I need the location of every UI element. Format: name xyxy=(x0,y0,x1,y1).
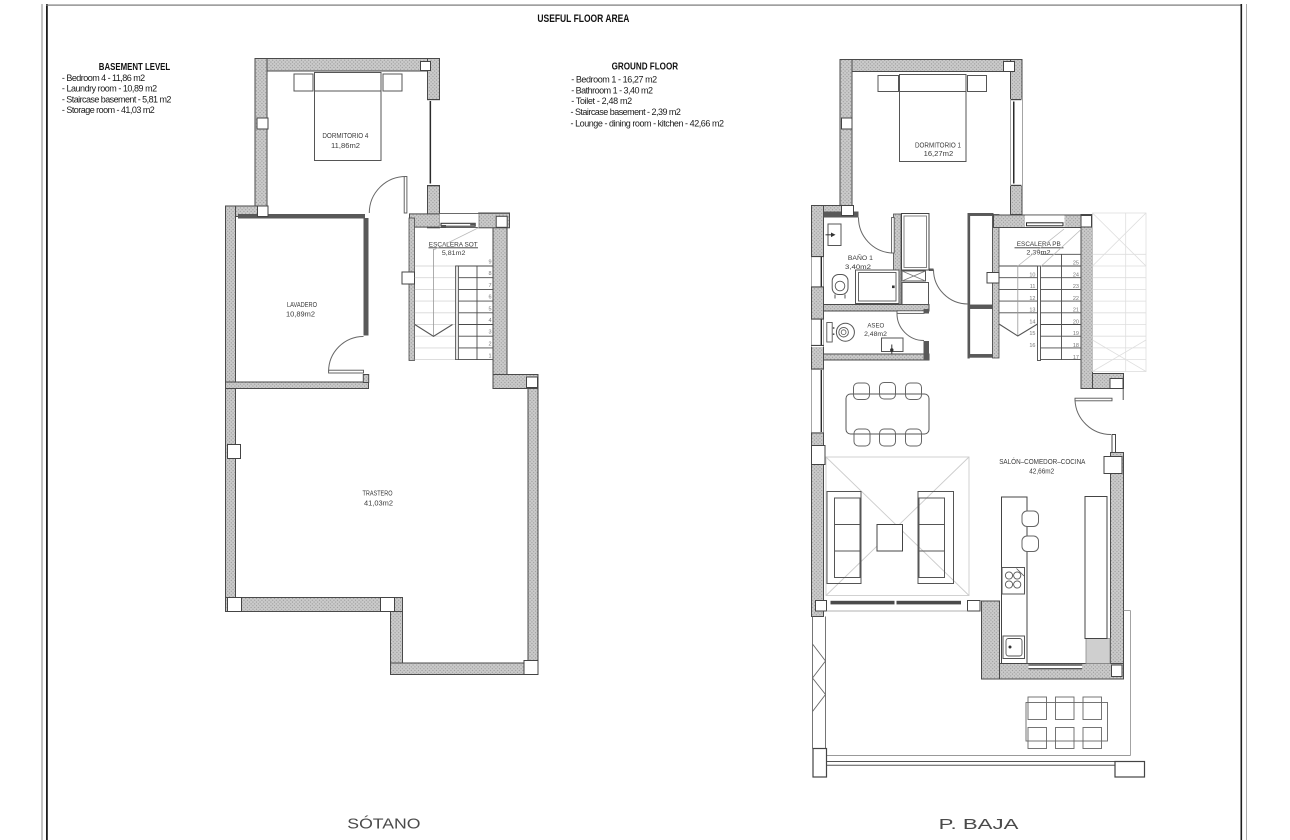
svg-text:2,48m2: 2,48m2 xyxy=(864,331,887,338)
svg-text:18: 18 xyxy=(1073,343,1079,349)
svg-text:LAVADERO: LAVADERO xyxy=(287,302,317,309)
svg-text:9: 9 xyxy=(488,260,491,266)
svg-text:16,27m2: 16,27m2 xyxy=(924,151,954,158)
svg-text:- Bedroom 1 - 16,27 m2: - Bedroom 1 - 16,27 m2 xyxy=(571,74,657,84)
svg-text:- Bathroom 1 - 3,40 m2: - Bathroom 1 - 3,40 m2 xyxy=(571,85,653,95)
svg-text:ESCALERA PB: ESCALERA PB xyxy=(1017,241,1061,248)
svg-text:- Staircase basement - 5,81 m2: - Staircase basement - 5,81 m2 xyxy=(62,94,171,104)
svg-text:10,89m2: 10,89m2 xyxy=(286,311,315,318)
svg-text:42,66m2: 42,66m2 xyxy=(1029,468,1054,475)
svg-text:DORMITORIO 4: DORMITORIO 4 xyxy=(322,133,368,140)
svg-text:- Storage room - 41,03 m2: - Storage room - 41,03 m2 xyxy=(62,105,155,115)
svg-text:- Toilet - 2,48 m2: - Toilet - 2,48 m2 xyxy=(571,96,632,106)
svg-text:5,81m2: 5,81m2 xyxy=(442,250,466,257)
svg-text:- Bedroom 4 - 11,86 m2: - Bedroom 4 - 11,86 m2 xyxy=(62,73,145,83)
svg-text:GROUND FLOOR: GROUND FLOOR xyxy=(612,61,679,72)
svg-text:16: 16 xyxy=(1029,343,1035,349)
svg-text:7: 7 xyxy=(488,283,491,289)
svg-text:SÓTANO: SÓTANO xyxy=(347,816,420,833)
svg-text:SALÓN–COMEDOR–COCINA: SALÓN–COMEDOR–COCINA xyxy=(999,457,1085,466)
svg-text:TRASTERO: TRASTERO xyxy=(363,491,393,498)
svg-text:DORMITORIO 1: DORMITORIO 1 xyxy=(915,142,961,149)
svg-text:4: 4 xyxy=(488,318,491,324)
svg-text:ASEO: ASEO xyxy=(867,323,884,330)
svg-text:41,03m2: 41,03m2 xyxy=(364,501,393,508)
svg-text:24: 24 xyxy=(1073,272,1079,278)
svg-text:12: 12 xyxy=(1029,296,1035,302)
svg-text:11: 11 xyxy=(1030,284,1036,290)
svg-text:11,86m2: 11,86m2 xyxy=(331,143,360,150)
svg-text:25: 25 xyxy=(1073,261,1079,267)
svg-text:- Lounge - dining room - kitch: - Lounge - dining room - kitchen - 42,66… xyxy=(571,118,725,128)
svg-text:23: 23 xyxy=(1073,284,1079,290)
svg-text:3: 3 xyxy=(488,330,491,336)
svg-text:21: 21 xyxy=(1073,308,1079,314)
svg-text:22: 22 xyxy=(1073,296,1079,302)
svg-text:BASEMENT LEVEL: BASEMENT LEVEL xyxy=(99,62,170,73)
svg-text:17: 17 xyxy=(1073,355,1079,361)
svg-text:20: 20 xyxy=(1073,319,1079,325)
svg-text:1: 1 xyxy=(488,353,491,359)
svg-text:2: 2 xyxy=(488,341,491,347)
svg-text:10: 10 xyxy=(1029,272,1035,278)
svg-text:- Staircase basement - 2,39 m2: - Staircase basement - 2,39 m2 xyxy=(571,107,681,117)
svg-text:5: 5 xyxy=(488,306,491,312)
svg-text:P. BAJA: P. BAJA xyxy=(939,817,1019,833)
svg-text:14: 14 xyxy=(1029,319,1035,325)
svg-text:8: 8 xyxy=(488,271,491,277)
svg-text:13: 13 xyxy=(1029,308,1035,314)
svg-text:USEFUL FLOOR AREA: USEFUL FLOOR AREA xyxy=(537,13,629,25)
svg-text:19: 19 xyxy=(1073,331,1079,337)
svg-text:2,39m2: 2,39m2 xyxy=(1026,249,1051,256)
svg-text:6: 6 xyxy=(488,295,491,301)
svg-text:15: 15 xyxy=(1029,331,1035,337)
svg-text:- Laundry room - 10,89 m2: - Laundry room - 10,89 m2 xyxy=(62,84,157,94)
svg-text:BAÑO 1: BAÑO 1 xyxy=(848,253,873,262)
